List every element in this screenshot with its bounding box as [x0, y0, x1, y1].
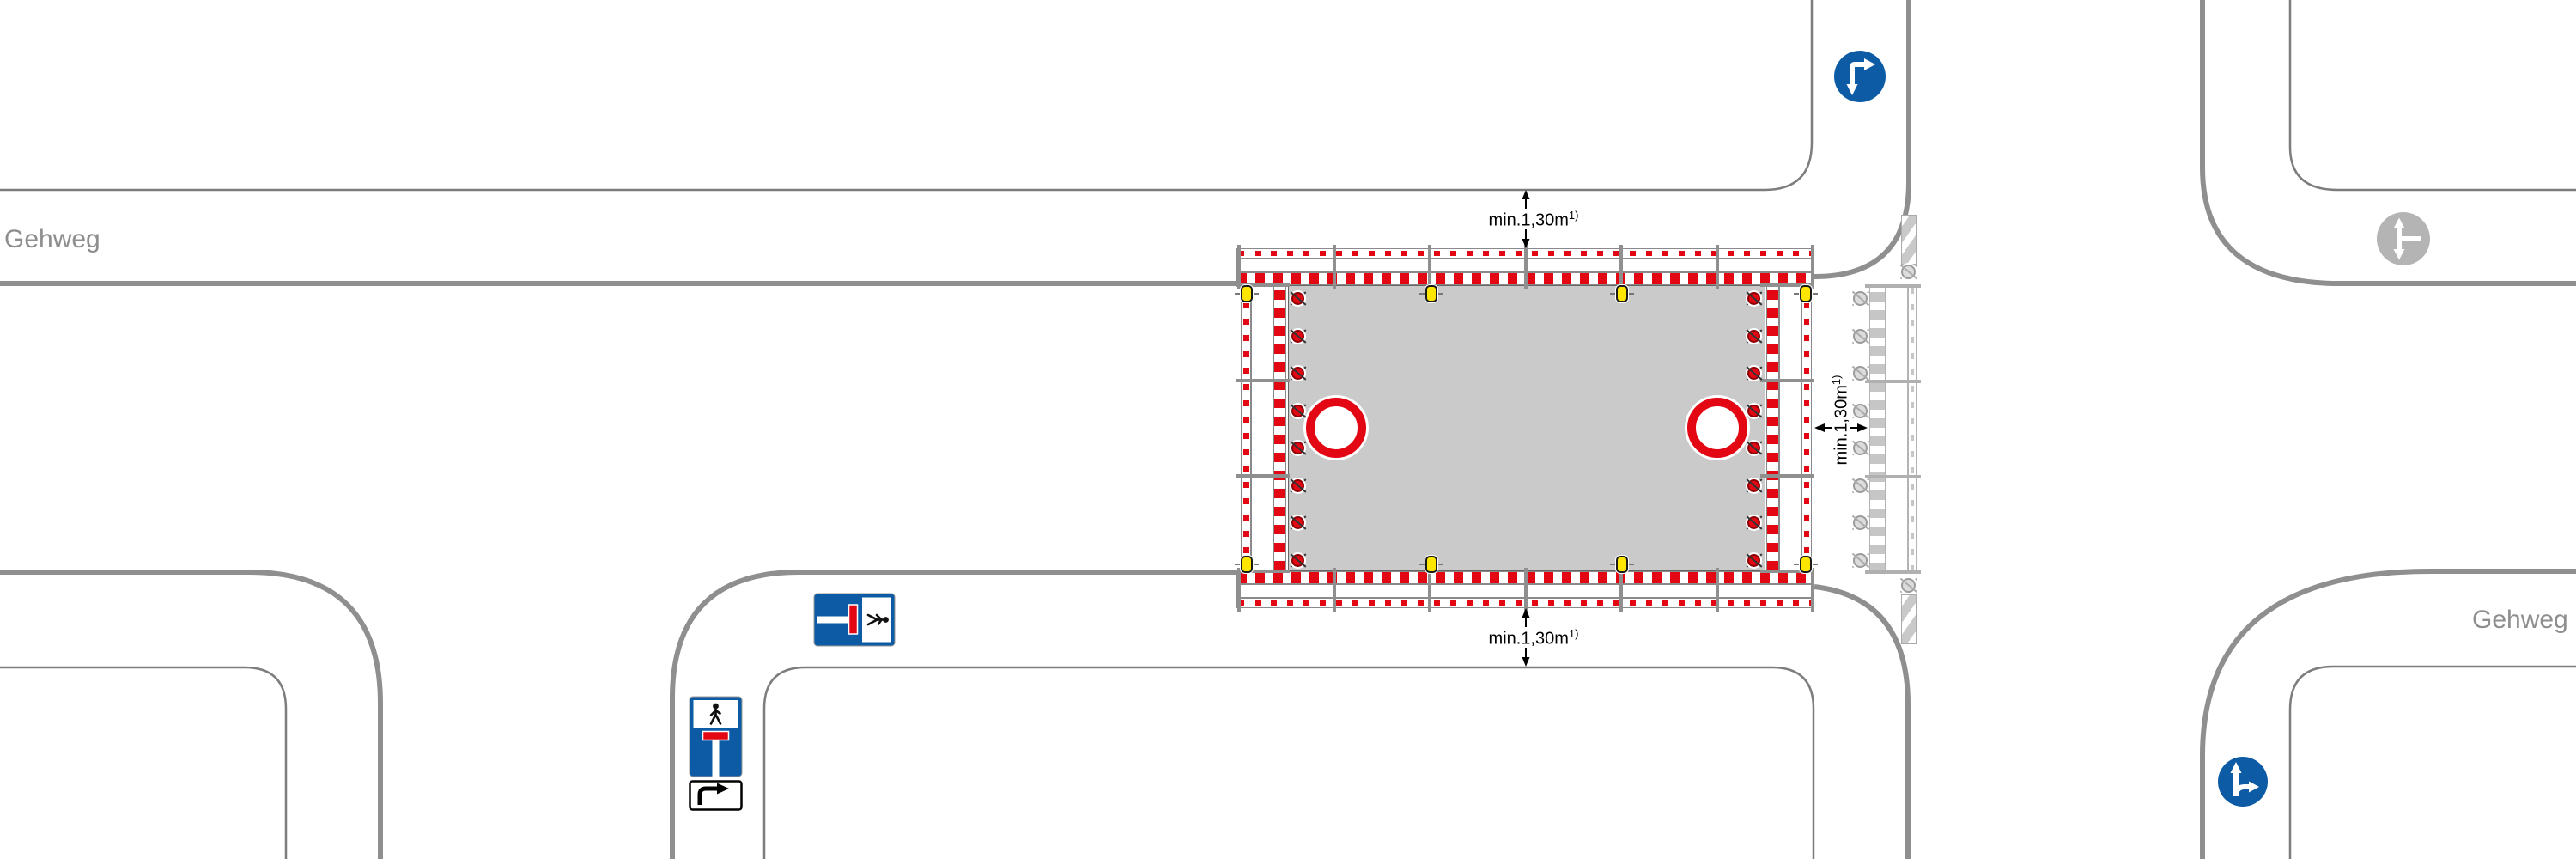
red-warning-lamp-icon [1291, 405, 1304, 417]
barrier-post [1428, 568, 1431, 612]
hatched-marker-board-icon [1901, 594, 1917, 644]
red-warning-lamp-icon [1747, 405, 1760, 417]
existing-barrier-post [1865, 284, 1921, 288]
red-warning-lamp-icon [1291, 516, 1304, 529]
gehweg-label-left: Gehweg [4, 225, 100, 254]
curb-north-center [1814, 0, 1909, 277]
red-warning-lamp-icon [1747, 516, 1760, 529]
barrier-fence-left-inner [1273, 285, 1286, 571]
barrier-post [1619, 245, 1623, 289]
sidewalk-edge-south-west [0, 667, 286, 859]
barrier-post [1236, 474, 1290, 478]
dimension-top: min.1,30m1) [1461, 190, 1606, 248]
red-warning-lamp-icon [1291, 330, 1304, 343]
barrier-post [1333, 245, 1336, 289]
inactive-lamp-icon [1853, 478, 1868, 493]
barrier-post [1811, 568, 1814, 612]
barrier-post [1428, 245, 1431, 289]
red-warning-lamp-icon [1747, 554, 1760, 567]
barrier-post [1619, 568, 1623, 612]
mandatory-direction-straight-or-right-icon [2217, 756, 2269, 812]
barrier-post [1524, 568, 1528, 612]
traffic-plan-canvas: Gehweg Gehweg [0, 0, 2576, 859]
yellow-flashing-lamp-icon [1800, 285, 1812, 302]
inactive-lamp-icon [1853, 515, 1868, 530]
shaft-ring-marker [1687, 398, 1747, 458]
inactive-lamp-icon [1853, 291, 1868, 306]
barrier-post [1716, 245, 1719, 289]
barrier-post [1760, 379, 1814, 382]
curb-south-west [0, 572, 380, 859]
red-warning-lamp-icon [1291, 367, 1304, 380]
construction-zone [1236, 248, 1814, 608]
dead-end-pedestrian-passage-icon [813, 593, 896, 651]
red-warning-lamp-icon [1291, 554, 1304, 567]
red-warning-lamp-icon [1747, 442, 1760, 454]
existing-barrier-post [1865, 380, 1921, 383]
existing-barrier-outer [1908, 286, 1917, 573]
barrier-post [1716, 568, 1719, 612]
sidewalk-edge-north-east [2290, 0, 2576, 190]
yellow-flashing-lamp-icon [1800, 556, 1812, 573]
inactive-lamp-icon [1901, 578, 1916, 593]
yellow-flashing-lamp-icon [1616, 285, 1628, 302]
existing-barrier-post [1865, 475, 1921, 478]
yellow-flashing-lamp-icon [1241, 556, 1253, 573]
red-warning-lamp-icon [1747, 292, 1760, 305]
dead-end-pedestrian-passage-icon [689, 696, 743, 782]
dimension-right-label: min.1,30m1) [1830, 362, 1850, 478]
sidewalk-edge-south-east [2290, 667, 2576, 859]
gehweg-label-right: Gehweg [2472, 606, 2568, 635]
yellow-flashing-lamp-icon [1425, 285, 1437, 302]
red-warning-lamp-icon [1747, 479, 1760, 492]
inactive-lamp-icon [1853, 404, 1868, 418]
barrier-post [1236, 379, 1290, 382]
red-warning-lamp-icon [1291, 292, 1304, 305]
inactive-lamp-icon [1853, 366, 1868, 381]
curb-south-leg-west [1814, 587, 1908, 859]
existing-barrier-row [1869, 286, 1917, 573]
inactive-lamp-icon [1853, 441, 1868, 455]
existing-barrier-post [1865, 570, 1921, 574]
inactive-lamp-icon [1853, 553, 1868, 568]
barrier-post [1811, 245, 1814, 289]
barrier-post [1237, 568, 1241, 612]
sidewalk-edge-north [0, 0, 1812, 190]
inactive-lamp-icon [1901, 265, 1916, 279]
dimension-bottom: min.1,30m1) [1461, 608, 1606, 667]
barrier-fence-right-rail [1779, 285, 1801, 571]
red-warning-lamp-icon [1747, 367, 1760, 380]
red-warning-lamp-icon [1291, 479, 1304, 492]
red-warning-lamp-icon [1747, 330, 1760, 343]
barrier-fence-right-inner [1766, 285, 1779, 571]
dimension-top-label: min.1,30m1) [1461, 209, 1606, 231]
inactive-lamp-icon [1853, 329, 1868, 344]
red-warning-lamp-icon [1291, 442, 1304, 454]
barrier-post [1333, 568, 1336, 612]
barrier-post [1524, 245, 1528, 289]
yellow-flashing-lamp-icon [1616, 556, 1628, 573]
existing-direction-sign-icon [2377, 212, 2430, 270]
mandatory-direction-down-or-right-icon [1833, 50, 1886, 107]
barrier-fence-left-rail [1251, 285, 1273, 571]
barrier-post [1237, 245, 1241, 289]
yellow-flashing-lamp-icon [1425, 556, 1437, 573]
existing-barrier-inner [1869, 286, 1886, 573]
barrier-fence-left-outer [1241, 285, 1251, 571]
hatched-marker-board-icon [1901, 215, 1917, 265]
right-turn-arrow-plate-icon [689, 780, 743, 815]
existing-barrier-rail [1886, 286, 1908, 573]
shaft-ring-marker [1306, 398, 1366, 458]
sidewalk-edge-south [764, 667, 1814, 859]
dimension-bottom-label: min.1,30m1) [1461, 627, 1606, 649]
barrier-fence-right-outer [1801, 285, 1812, 571]
yellow-flashing-lamp-icon [1241, 285, 1253, 302]
barrier-post [1760, 474, 1814, 478]
